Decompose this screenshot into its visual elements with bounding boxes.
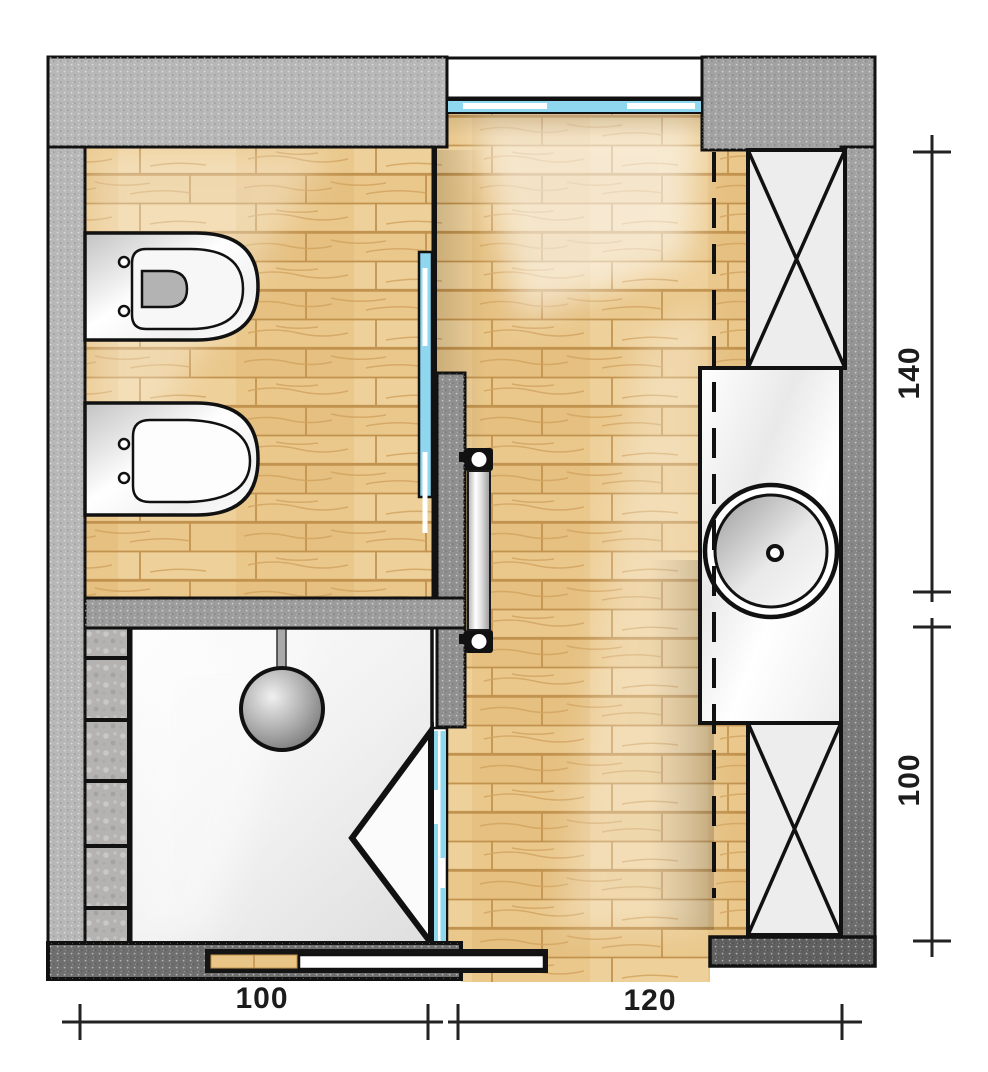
toilet-fitting (119, 439, 129, 449)
toilet (85, 403, 258, 515)
basin-drain (768, 546, 782, 560)
radiator-cap-circle (472, 452, 487, 467)
radiator-bar (468, 471, 490, 630)
shower-glass-highlight (441, 858, 446, 888)
partition-wall-horizontal (85, 598, 465, 628)
shower-glass-blue-line (441, 731, 446, 942)
radiator-mount (459, 452, 466, 462)
bidet-tap-area (142, 271, 187, 307)
radiator-mount (459, 634, 466, 644)
bathroom-floor-plan: 140 100 100 120 (0, 0, 988, 1072)
outer-wall-top-right (702, 57, 875, 150)
shower-glass-highlight (434, 790, 439, 824)
shower-head-sphere (241, 668, 323, 750)
shower-enclosure (85, 628, 432, 945)
shower-glass-blue-line (434, 731, 439, 942)
window-sill (447, 58, 702, 98)
glass-partition-highlight (423, 268, 428, 346)
window-glass-highlight (463, 103, 547, 109)
toilet-fitting (119, 473, 129, 483)
storage-cabinet-top (748, 150, 845, 368)
bidet (85, 233, 258, 340)
window (447, 58, 702, 113)
shower-head-arm (277, 628, 286, 670)
glass-partition-highlight (423, 452, 428, 533)
dimension-label-120: 120 (600, 985, 700, 1017)
sliding-door-panel (299, 955, 544, 969)
outer-wall-bottom-right (710, 937, 875, 966)
toilet-bowl (133, 420, 250, 502)
radiator-cap-circle (472, 634, 487, 649)
storage-cabinet-bottom (748, 723, 841, 935)
floor-plan-canvas (0, 0, 988, 1072)
dimension-label-right-100: 100 (894, 749, 926, 811)
washbasin-counter (700, 368, 841, 723)
bidet-fitting (119, 306, 129, 316)
shower-tile-strip (85, 628, 131, 945)
bidet-fitting (119, 257, 129, 267)
partition-wall-vertical (437, 373, 465, 727)
glass-partition (419, 252, 432, 533)
dimension-label-bottom-100: 100 (212, 983, 312, 1015)
outer-wall-top-left (48, 57, 447, 147)
outer-wall-left (48, 57, 85, 966)
window-glass-highlight (627, 103, 695, 109)
dimension-label-140: 140 (894, 342, 926, 404)
